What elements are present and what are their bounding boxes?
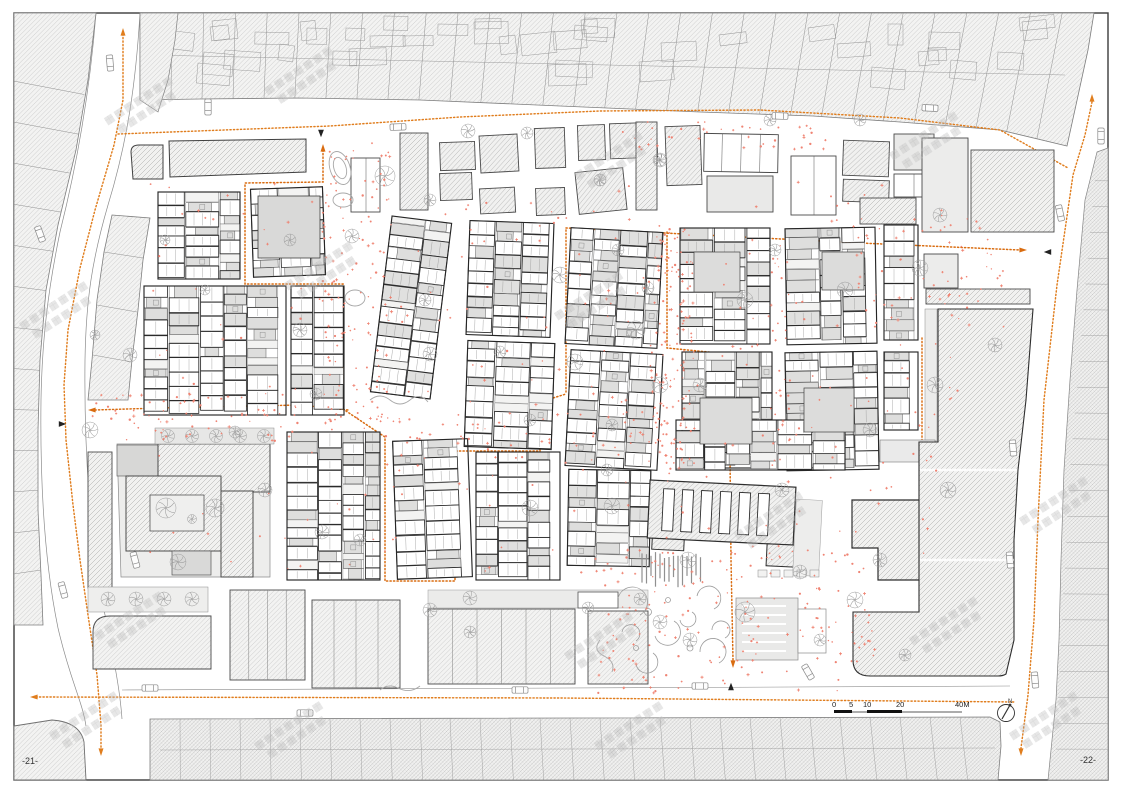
svg-text:10: 10	[863, 700, 871, 709]
svg-text:N: N	[1008, 699, 1012, 705]
svg-text:5: 5	[849, 700, 853, 709]
svg-text:0: 0	[832, 700, 836, 709]
svg-text:20: 20	[896, 700, 904, 709]
svg-text:-22-: -22-	[1080, 755, 1096, 765]
svg-text:-21-: -21-	[22, 756, 38, 766]
svg-text:40M: 40M	[955, 700, 970, 709]
